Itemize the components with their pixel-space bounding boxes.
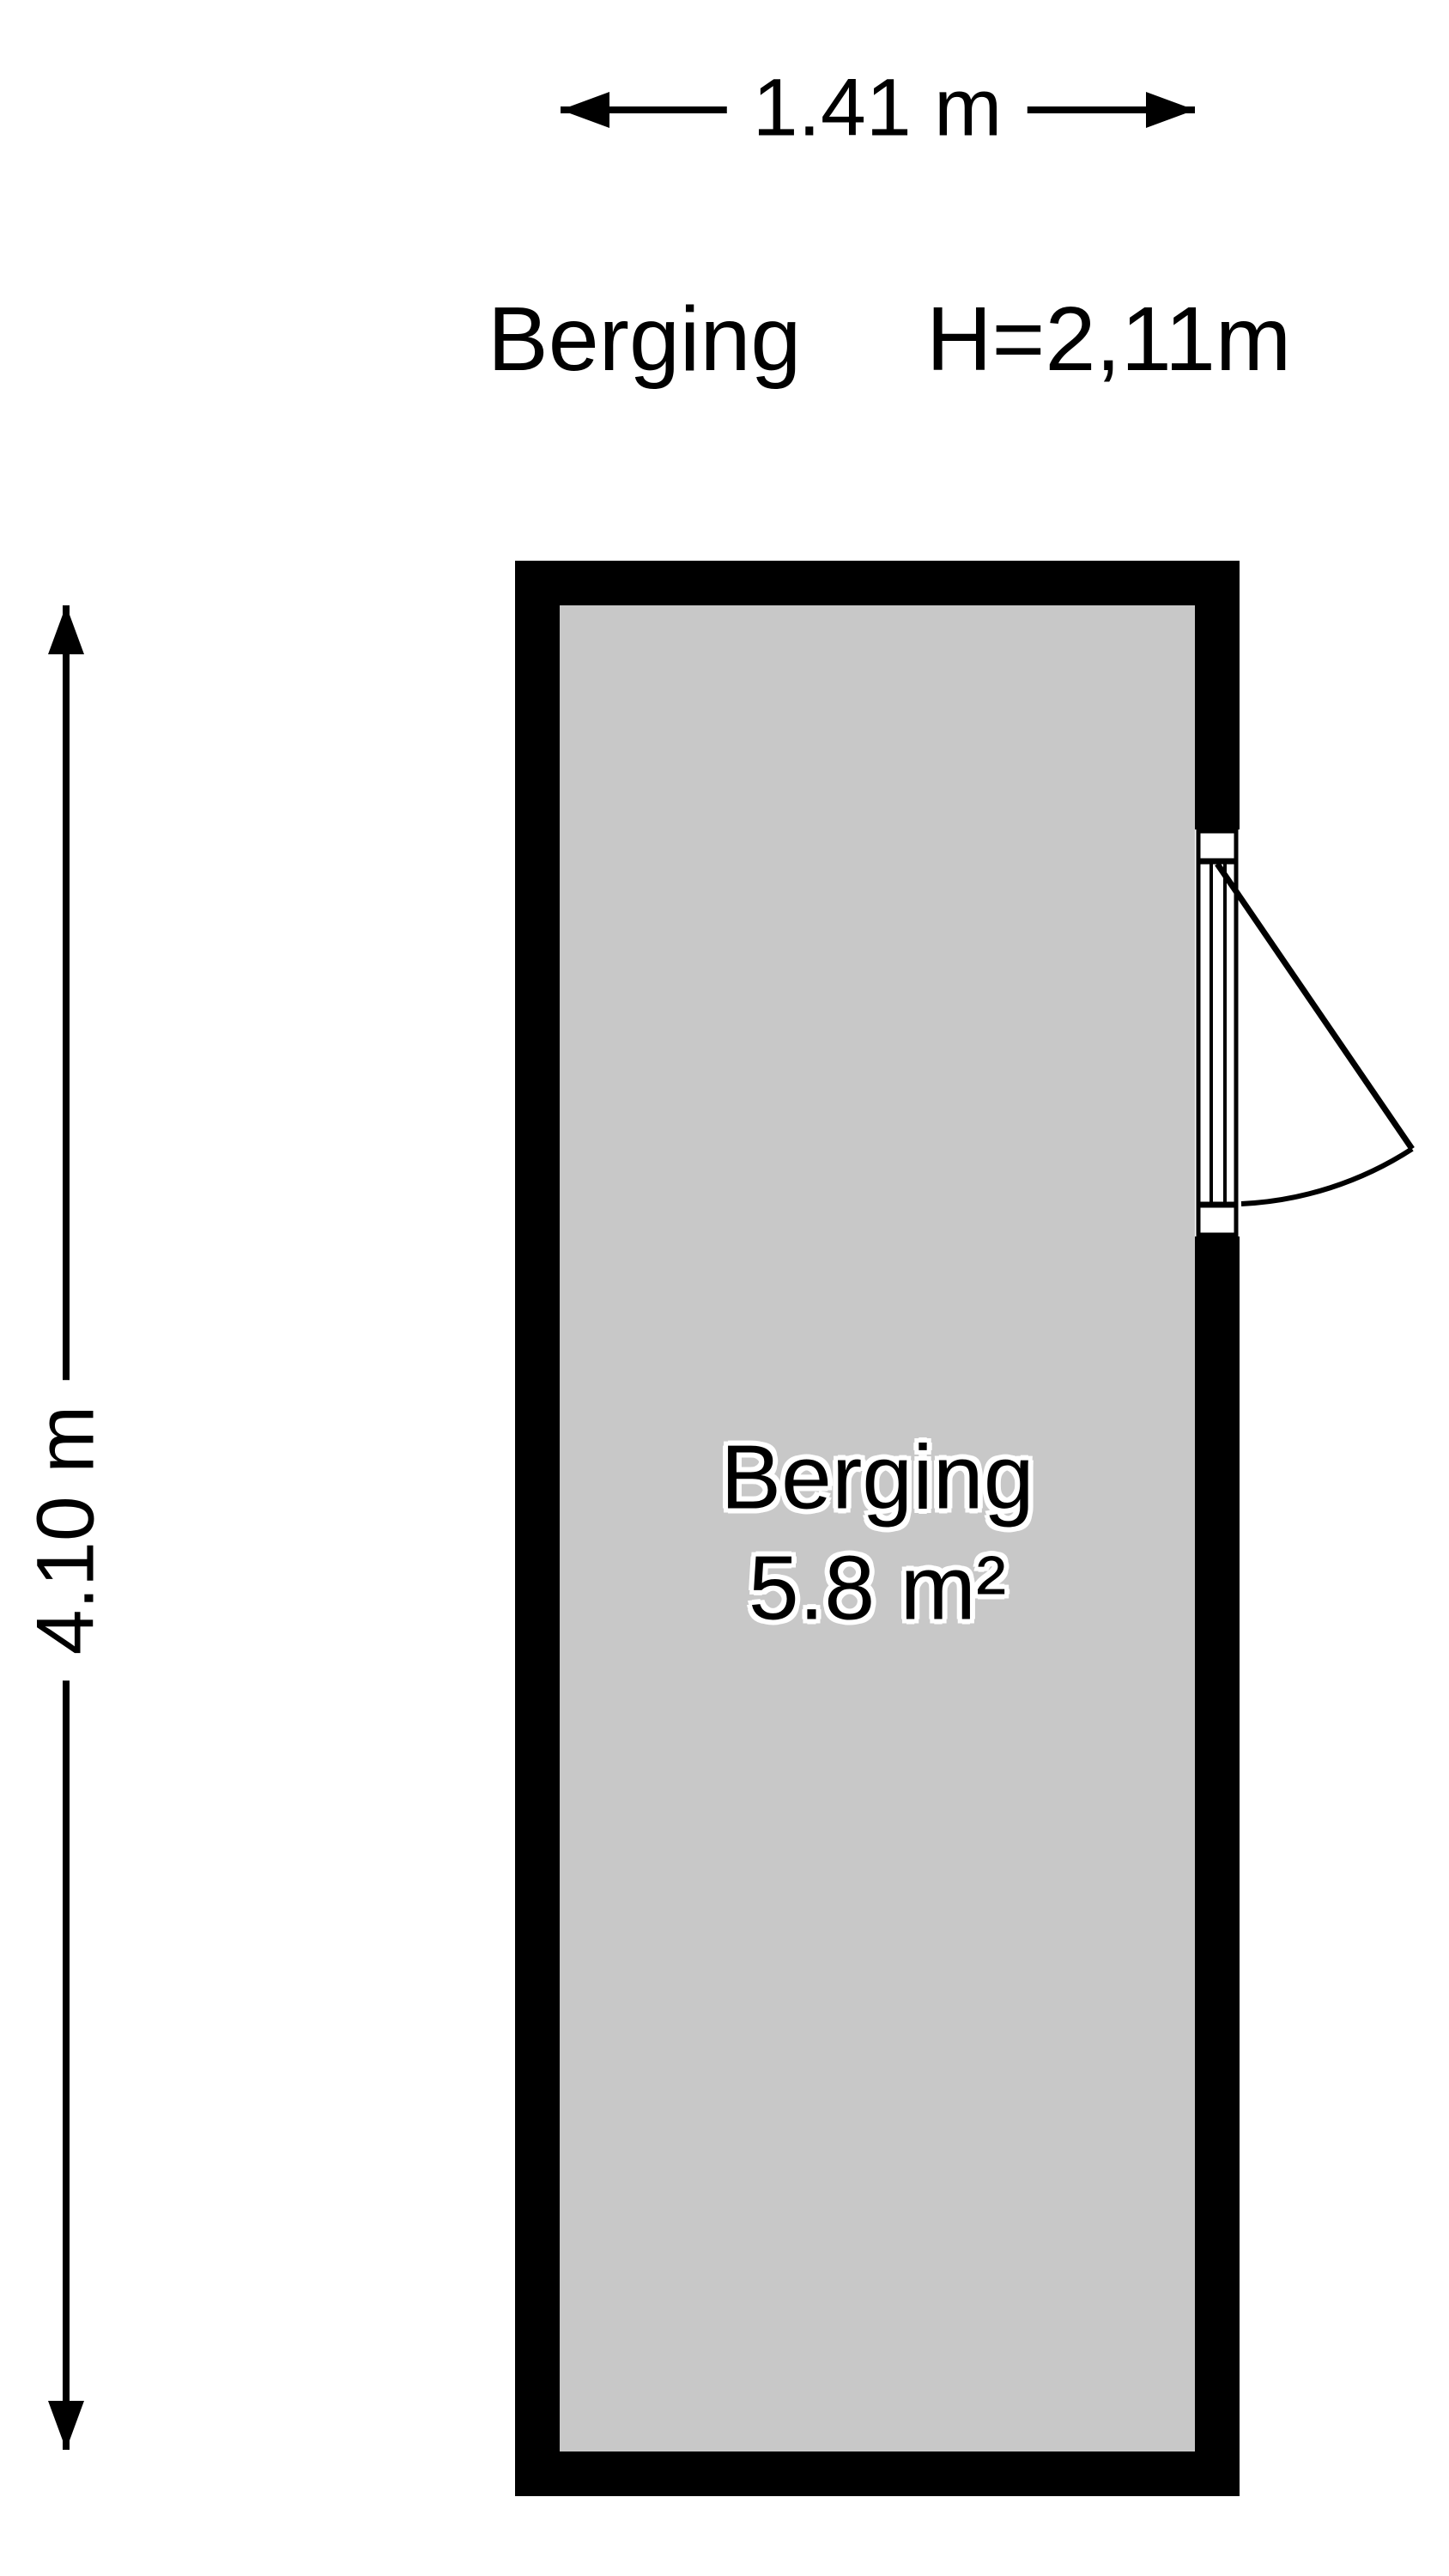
room-label-area: 5.8 m²: [560, 1534, 1195, 1644]
floor-plan-canvas: 1.41 m Berging H=2,11m 4.10 m Berging 5.…: [0, 0, 1449, 2576]
door-jamb-top: [1198, 831, 1236, 860]
header-room-name: Berging: [488, 294, 801, 385]
height-dimension-label: 4.10 m: [21, 1380, 112, 1680]
width-dimension-label: 1.41 m: [727, 63, 1028, 155]
arrowhead-down-icon: [48, 2401, 84, 2450]
door-jamb-bottom: [1198, 1206, 1236, 1235]
arrowhead-left-icon: [561, 92, 609, 128]
arrowhead-up-icon: [48, 605, 84, 654]
arrowhead-right-icon: [1146, 92, 1195, 128]
door-swing-arc: [1241, 1149, 1412, 1204]
door-leaf: [1198, 862, 1236, 1204]
door: [1185, 816, 1449, 1245]
room-label: Berging 5.8 m²: [560, 1423, 1195, 1645]
door-open-leaf-line: [1217, 864, 1412, 1149]
header-ceiling-height: H=2,11m: [926, 294, 1291, 385]
room-label-name: Berging: [560, 1423, 1195, 1534]
